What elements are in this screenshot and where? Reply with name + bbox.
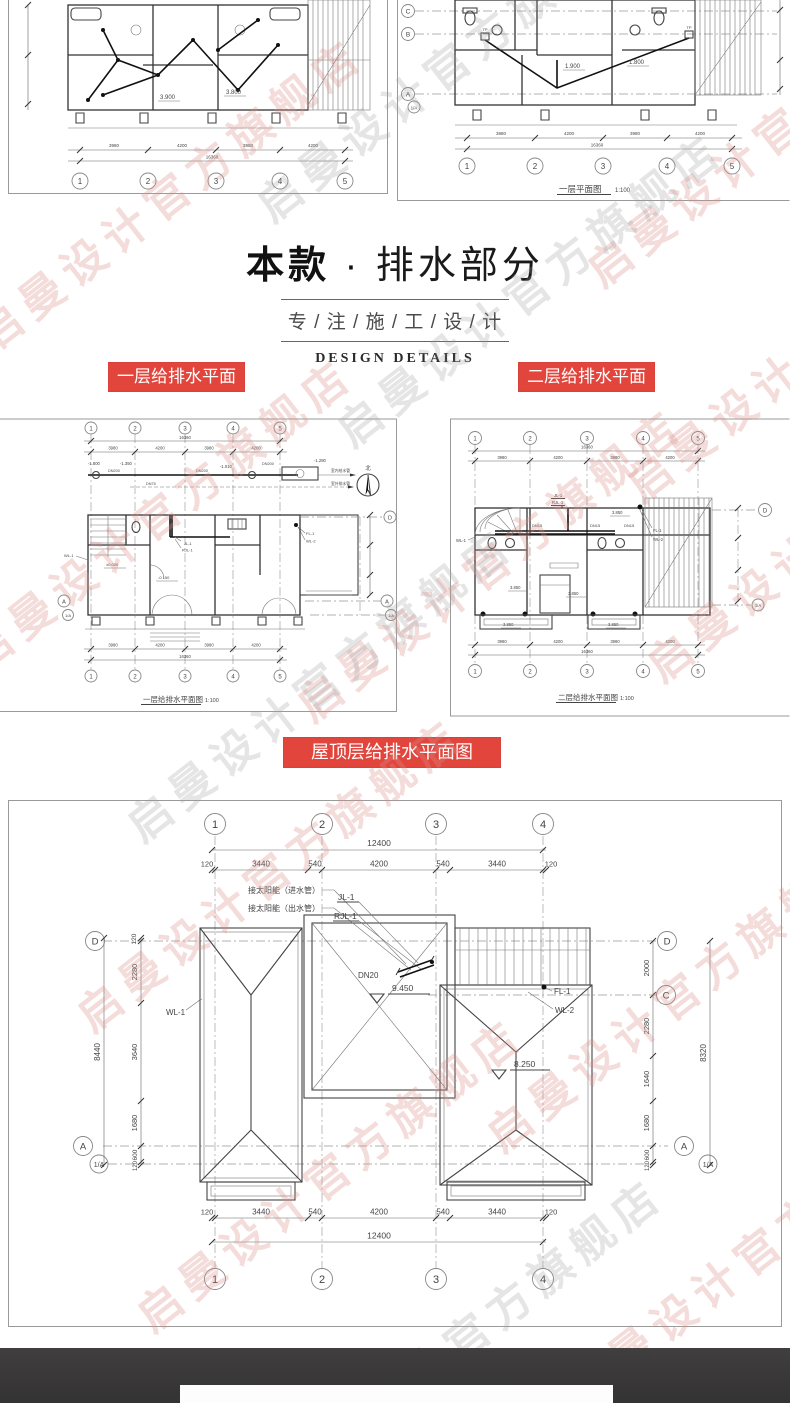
section-title: 本款 · 排水部分 bbox=[0, 234, 790, 289]
terrace-hatch bbox=[455, 928, 590, 985]
tp-label: TP bbox=[686, 25, 691, 30]
svg-text:4: 4 bbox=[540, 819, 546, 831]
north-compass: 北 bbox=[357, 464, 379, 496]
svg-text:1: 1 bbox=[465, 162, 470, 171]
pipe-label: DN200 bbox=[108, 469, 120, 473]
svg-text:C: C bbox=[663, 991, 670, 1002]
dim-label: 3980 bbox=[204, 446, 214, 451]
elevation-label: -1.010 bbox=[220, 464, 233, 469]
grid-bubbles: 1 2 3 4 5 bbox=[459, 158, 740, 174]
dim-label: 120 bbox=[545, 1208, 558, 1217]
dimension-row-bottom: 3980 4200 3980 4200 16360 bbox=[468, 639, 705, 658]
elevation-label: -0.150 bbox=[158, 575, 170, 580]
elevation-label: -1.350 bbox=[120, 461, 133, 466]
row-bubbles: D D C A A 1/A 1/A bbox=[74, 932, 718, 1174]
dimension-bottom: 120 3440 540 4200 540 3440 120 12400 bbox=[201, 1208, 558, 1246]
drawing-electrical-plan-left: 3.900 3.800 3980 4200 3980 4200 16360 1 … bbox=[8, 0, 388, 196]
stair-hatch bbox=[308, 0, 370, 110]
footer-card bbox=[180, 1385, 613, 1403]
dim-label: 3980 bbox=[497, 639, 507, 644]
dim-label: 2280 bbox=[642, 1018, 651, 1035]
dim-total: 8320 bbox=[699, 1044, 708, 1062]
pipe-label: DN15 bbox=[624, 523, 635, 528]
terrace-hatch bbox=[645, 498, 712, 607]
dim-total: 12400 bbox=[367, 1231, 391, 1241]
pipe-label: DN15 bbox=[590, 523, 601, 528]
dim-label: 120 bbox=[201, 860, 214, 869]
pipe-note: 接太阳能（进水管） bbox=[248, 885, 320, 895]
svg-text:5: 5 bbox=[343, 177, 348, 186]
svg-text:3.850: 3.850 bbox=[612, 510, 623, 515]
dimension-row-top: 16360 3980 4200 3980 4200 bbox=[84, 435, 287, 455]
riser-label: WL-2 bbox=[653, 537, 664, 542]
svg-text:D: D bbox=[388, 516, 392, 522]
dim-label: 600 bbox=[644, 1149, 651, 1160]
dim-label: 2000 bbox=[642, 960, 651, 977]
riser-label: WL-2 bbox=[306, 539, 316, 544]
side-bubbles: D 1/A bbox=[712, 504, 772, 612]
dim-label: 540 bbox=[308, 860, 322, 869]
svg-text:2: 2 bbox=[533, 162, 538, 171]
dim-label: 4200 bbox=[251, 643, 261, 648]
elevation-label: 9.450 bbox=[392, 983, 414, 993]
title-strong: 本款 bbox=[246, 245, 330, 287]
svg-text:3.850: 3.850 bbox=[510, 585, 521, 590]
svg-text:一层给排水平面图: 一层给排水平面图 bbox=[143, 694, 203, 704]
svg-text:B: B bbox=[406, 32, 410, 39]
dim-label: 3980 bbox=[109, 143, 120, 148]
pipe-label: DN75 bbox=[146, 482, 156, 486]
badge-floor1-plan: 一层给排水平面 bbox=[108, 362, 245, 392]
dim-label: 4200 bbox=[155, 643, 165, 648]
svg-text:A: A bbox=[681, 1142, 688, 1153]
roof-center bbox=[304, 915, 455, 1098]
dim-label: 4200 bbox=[251, 446, 261, 451]
porch-columns bbox=[85, 617, 305, 641]
riser-label: JL-1 bbox=[554, 493, 563, 498]
dim-label: 4200 bbox=[553, 455, 563, 460]
dim-label: 2280 bbox=[130, 964, 139, 981]
svg-text:5: 5 bbox=[730, 162, 735, 171]
dim-total: 16360 bbox=[179, 654, 191, 659]
riser-label: JL-1 bbox=[338, 892, 355, 902]
elevation-label: 3.800 bbox=[226, 90, 242, 96]
roof-right bbox=[440, 985, 592, 1185]
drawing-floor1-drainage-plan: 1 2 3 4 5 16360 3980 4200 3980 4200 -1.8… bbox=[0, 415, 400, 715]
grid-bubbles-bottom: 1 2 3 4 5 bbox=[85, 670, 286, 682]
riser-label: WL-2 bbox=[555, 1006, 575, 1015]
wiring-lines bbox=[86, 18, 280, 102]
porch-columns bbox=[455, 110, 737, 125]
product-detail-page: 启曼设计官方旗舰店 启曼设计官方旗舰店 启曼设计官方旗舰店 启曼设计官方旗舰店 … bbox=[0, 0, 790, 1403]
north-label: 北 bbox=[365, 464, 371, 472]
dim-total: 12400 bbox=[367, 838, 391, 848]
pipe-label: DN200 bbox=[196, 469, 208, 473]
elevation-label: 1.900 bbox=[565, 64, 581, 70]
dim-total: 16360 bbox=[179, 435, 191, 440]
elevation-label: -1.280 bbox=[314, 458, 327, 463]
svg-text:3: 3 bbox=[214, 177, 219, 186]
garage-wing bbox=[300, 515, 358, 595]
svg-text:2: 2 bbox=[146, 177, 151, 186]
svg-text:3.850: 3.850 bbox=[608, 622, 619, 627]
svg-text:1/A: 1/A bbox=[755, 603, 761, 608]
svg-text:4: 4 bbox=[278, 177, 283, 186]
dim-label: 540 bbox=[436, 860, 450, 869]
grid-bubbles-bottom: 1 2 3 4 5 bbox=[469, 665, 705, 678]
riser-label: RJL-1 bbox=[552, 500, 564, 505]
svg-text:1/A: 1/A bbox=[388, 613, 394, 618]
svg-text:2: 2 bbox=[319, 819, 325, 831]
riser-label: RJL-1 bbox=[182, 548, 193, 553]
svg-text:A: A bbox=[62, 600, 66, 606]
drawing-caption: 二层给排水平面图 1:100 bbox=[556, 692, 634, 703]
drawing-plan-top-right: C B A 1/A TP TP 1.900 1.800 bbox=[397, 0, 790, 212]
porch-columns bbox=[68, 113, 353, 128]
badge-floor2-plan: 二层给排水平面 bbox=[518, 362, 655, 392]
dimension-row: 3980 4200 3980 4200 16360 bbox=[25, 2, 353, 164]
dim-label: 120 bbox=[201, 1208, 214, 1217]
svg-text:D: D bbox=[763, 509, 768, 515]
dim-label: 4200 bbox=[177, 143, 188, 148]
dim-label: 1680 bbox=[642, 1115, 651, 1132]
svg-text:2: 2 bbox=[319, 1274, 325, 1286]
svg-text:3.850: 3.850 bbox=[568, 591, 579, 596]
dim-total: 16360 bbox=[206, 155, 219, 160]
svg-text:A: A bbox=[80, 1142, 87, 1153]
dim-label: 3440 bbox=[488, 1208, 506, 1217]
dimension-row-top: 16360 3980 4200 3980 4200 bbox=[468, 445, 705, 465]
svg-text:3.850: 3.850 bbox=[503, 622, 514, 627]
dim-label: 4200 bbox=[564, 131, 575, 136]
riser-label: FL-1 bbox=[554, 987, 571, 996]
svg-text:A: A bbox=[406, 92, 411, 99]
dim-label: 4200 bbox=[665, 455, 675, 460]
dim-label: 3980 bbox=[204, 643, 214, 648]
elevation-labels: 3.850 3.850 3.850 3.850 3.850 bbox=[501, 510, 630, 628]
elevation-label: ±0.000 bbox=[106, 562, 119, 567]
svg-text:3: 3 bbox=[433, 819, 439, 831]
dimension-top: 12400 120 3440 540 4200 540 3440 120 bbox=[201, 838, 558, 873]
drawing-caption: 一层平面图 1:100 bbox=[557, 184, 631, 195]
riser-label: FL-1 bbox=[653, 528, 662, 533]
dimension-left: 120 2280 3640 1680 600 120 8440 bbox=[93, 933, 144, 1171]
svg-text:D: D bbox=[664, 937, 671, 948]
pipe-note: 接太阳能（出水管） bbox=[248, 903, 320, 913]
tp-label: TP bbox=[482, 27, 487, 32]
dimension-row: 3980 4200 3980 4200 16360 bbox=[455, 0, 783, 152]
dim-label: 120 bbox=[645, 1160, 651, 1171]
svg-text:C: C bbox=[406, 9, 411, 16]
dim-label: 1640 bbox=[642, 1071, 651, 1088]
dim-label: 3440 bbox=[488, 860, 506, 869]
dim-label: 4200 bbox=[370, 860, 388, 869]
dim-label: 4200 bbox=[370, 1208, 388, 1217]
telephone-wires: TP TP bbox=[481, 25, 693, 88]
riser-pipes: JL-1 RJL-1 DN15 DN15 DN15 FL-1 WL-2 WL-1 bbox=[456, 493, 664, 617]
elevation-side: 8.250 bbox=[492, 1059, 550, 1079]
dim-label: 3980 bbox=[108, 643, 118, 648]
dim-label: 4200 bbox=[665, 639, 675, 644]
grid-bubbles: 1 2 3 4 5 bbox=[72, 173, 353, 189]
dim-label: 120 bbox=[131, 933, 138, 944]
dim-label: 3980 bbox=[108, 446, 118, 451]
drawing-caption: 一层给排水平面图 1:100 bbox=[141, 694, 219, 705]
title-dot: · bbox=[345, 245, 362, 287]
dim-label: 4200 bbox=[695, 131, 706, 136]
dim-label: 4200 bbox=[553, 639, 563, 644]
svg-text:1: 1 bbox=[212, 819, 218, 831]
svg-text:1: 1 bbox=[212, 1274, 218, 1286]
pipe-label: DN20 bbox=[358, 971, 379, 980]
dim-total: 16360 bbox=[581, 649, 593, 654]
riser-label: FL-1 bbox=[306, 531, 315, 536]
riser-label: WL-1 bbox=[456, 538, 467, 543]
badge-roof-plan: 屋顶层给排水平面图 bbox=[283, 737, 501, 768]
svg-text:一层平面图: 一层平面图 bbox=[559, 184, 602, 194]
stairs bbox=[90, 515, 126, 557]
dim-total: 16360 bbox=[591, 143, 604, 148]
riser-label: WL-1 bbox=[64, 553, 74, 558]
riser-labels: WL-1 FL-1 WL-2 bbox=[166, 985, 575, 1018]
section-subtitle: 专 / 注 / 施 / 工 / 设 / 计 bbox=[281, 299, 509, 342]
dim-label: 3980 bbox=[496, 131, 507, 136]
svg-text:1: 1 bbox=[78, 177, 83, 186]
svg-text:1/A: 1/A bbox=[411, 106, 418, 111]
elevation-label: 8.250 bbox=[514, 1059, 536, 1069]
svg-text:1:100: 1:100 bbox=[205, 698, 219, 704]
dim-total: 8440 bbox=[93, 1043, 102, 1061]
pipe-note: 室内给水管 bbox=[331, 468, 350, 473]
title-rest: 排水部分 bbox=[376, 245, 544, 287]
svg-text:1/A: 1/A bbox=[65, 613, 71, 618]
svg-text:D: D bbox=[92, 937, 99, 948]
svg-text:4: 4 bbox=[540, 1274, 546, 1286]
dim-label: 600 bbox=[132, 1149, 139, 1160]
riser-label: JL-1 bbox=[184, 541, 193, 546]
elevation-main: 9.450 bbox=[370, 983, 430, 1003]
svg-text:4: 4 bbox=[665, 162, 670, 171]
dim-label: 3980 bbox=[497, 455, 507, 460]
drawing-floor2-drainage-plan: 1 2 3 4 5 16360 3980 4200 3980 4200 bbox=[440, 415, 790, 717]
riser-label: WL-1 bbox=[166, 1008, 186, 1017]
svg-text:1:100: 1:100 bbox=[615, 188, 631, 194]
dim-label: 4200 bbox=[155, 446, 165, 451]
pipe-note: 室外排水管 bbox=[331, 481, 350, 486]
svg-text:二层给排水平面图: 二层给排水平面图 bbox=[558, 692, 618, 702]
svg-text:1:100: 1:100 bbox=[620, 696, 634, 702]
dim-label: 540 bbox=[308, 1208, 322, 1217]
grid-bubbles-bottom: 1 2 3 4 bbox=[205, 1269, 554, 1290]
dim-label: 3640 bbox=[130, 1044, 139, 1061]
grid-bubbles-top: 1 2 3 4 bbox=[205, 814, 554, 835]
dimension-row-bottom: 3980 4200 3980 4200 16360 bbox=[84, 643, 287, 664]
pipe-label: DN15 bbox=[532, 523, 543, 528]
building-walls bbox=[455, 0, 695, 105]
dim-label: 120 bbox=[133, 1160, 139, 1171]
svg-text:3: 3 bbox=[433, 1274, 439, 1286]
svg-text:3: 3 bbox=[601, 162, 606, 171]
stair-hatch bbox=[695, 0, 761, 95]
dimension-right: 2000 2280 1640 1680 600 120 8320 bbox=[642, 938, 713, 1171]
dim-label: 540 bbox=[436, 1208, 450, 1217]
dim-label: 3980 bbox=[630, 131, 641, 136]
building-walls bbox=[88, 515, 300, 615]
dim-label: 3440 bbox=[252, 1208, 270, 1217]
dim-label: 3980 bbox=[243, 143, 254, 148]
riser-label: RJL-1 bbox=[334, 911, 357, 921]
elevation-label: 1.800 bbox=[629, 60, 645, 66]
dim-label: 1680 bbox=[130, 1115, 139, 1132]
pipe-label: DN200 bbox=[262, 462, 274, 466]
section-title-block: 本款 · 排水部分 专 / 注 / 施 / 工 / 设 / 计 DESIGN D… bbox=[0, 234, 790, 367]
drawing-roof-drainage-plan: 1 2 3 4 12400 120 3440 540 4200 540 3440… bbox=[8, 800, 782, 1327]
water-supply-pipes: -1.800 -1.350 -1.010 -1.280 DN200 DN200 … bbox=[88, 458, 356, 489]
dim-label: 4200 bbox=[308, 143, 319, 148]
solar-pipe-assembly: 接太阳能（进水管） 接太阳能（出水管） JL-1 RJL-1 DN20 bbox=[248, 885, 434, 980]
svg-text:A: A bbox=[385, 600, 389, 606]
dim-label: 120 bbox=[545, 860, 558, 869]
dim-label: 3980 bbox=[610, 455, 620, 460]
elevation-label: 3.900 bbox=[160, 95, 176, 101]
dim-label: 3980 bbox=[610, 639, 620, 644]
elevation-label: -1.800 bbox=[88, 461, 101, 466]
footer-band bbox=[0, 1348, 790, 1403]
grid-lines bbox=[103, 836, 668, 1268]
dim-label: 3440 bbox=[252, 860, 270, 869]
dim-total: 16360 bbox=[581, 445, 593, 450]
